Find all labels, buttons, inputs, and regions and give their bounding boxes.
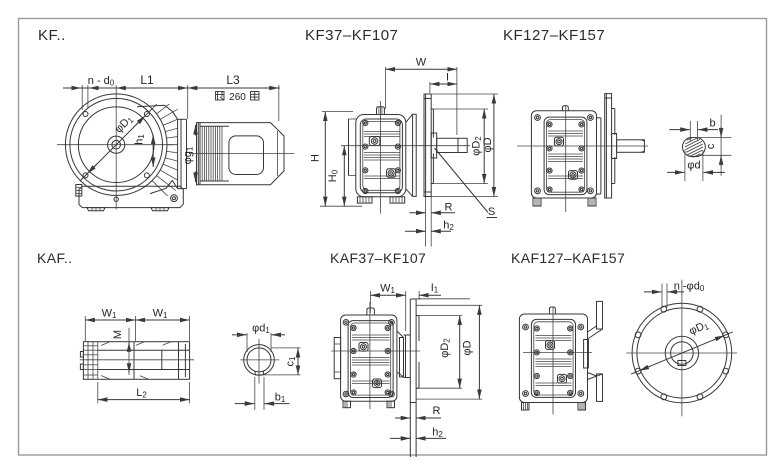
svg-text:L3: L3 [226,73,240,87]
svg-text:n - d0: n - d0 [88,75,115,88]
svg-text:h1: h1 [134,134,147,145]
svg-text:W1: W1 [153,308,168,321]
svg-text:φD1: φD1 [688,319,711,338]
svg-text:S: S [488,206,495,218]
svg-text:h2: h2 [432,427,443,440]
svg-text:φD2: φD2 [439,338,452,358]
svg-text:W: W [416,57,427,69]
svg-text:L1: L1 [140,73,154,87]
svg-text:KAF..: KAF.. [37,250,72,266]
svg-text:I: I [446,72,449,84]
svg-text:φg1: φg1 [182,146,195,164]
svg-text:h2: h2 [443,220,454,233]
svg-text:b1: b1 [275,392,286,405]
svg-text:KF37–KF107: KF37–KF107 [305,27,398,44]
svg-text:b: b [709,118,715,130]
svg-text:φd: φd [687,160,700,172]
svg-text:φd1: φd1 [252,323,270,336]
svg-text:φD: φD [462,340,474,355]
svg-text:KAF127–KAF157: KAF127–KAF157 [511,250,625,266]
svg-text:c1: c1 [285,356,298,367]
svg-text:KF..: KF.. [38,27,66,44]
svg-text:M: M [112,330,124,339]
svg-text:KF127–KF157: KF127–KF157 [503,27,605,44]
svg-text:H: H [310,154,322,162]
svg-text:c: c [705,143,717,149]
svg-text:φD: φD [482,137,494,152]
svg-text:R: R [445,202,453,214]
svg-text:L2: L2 [136,387,147,400]
svg-text:H0: H0 [327,169,340,182]
svg-text:W1: W1 [102,308,117,321]
svg-text:260: 260 [229,92,246,103]
svg-text:n -φd0: n -φd0 [674,281,705,294]
svg-text:R: R [433,405,441,417]
svg-text:W1: W1 [380,283,395,296]
svg-text:KAF37–KF107: KAF37–KF107 [330,250,426,266]
svg-text:I1: I1 [431,282,439,295]
